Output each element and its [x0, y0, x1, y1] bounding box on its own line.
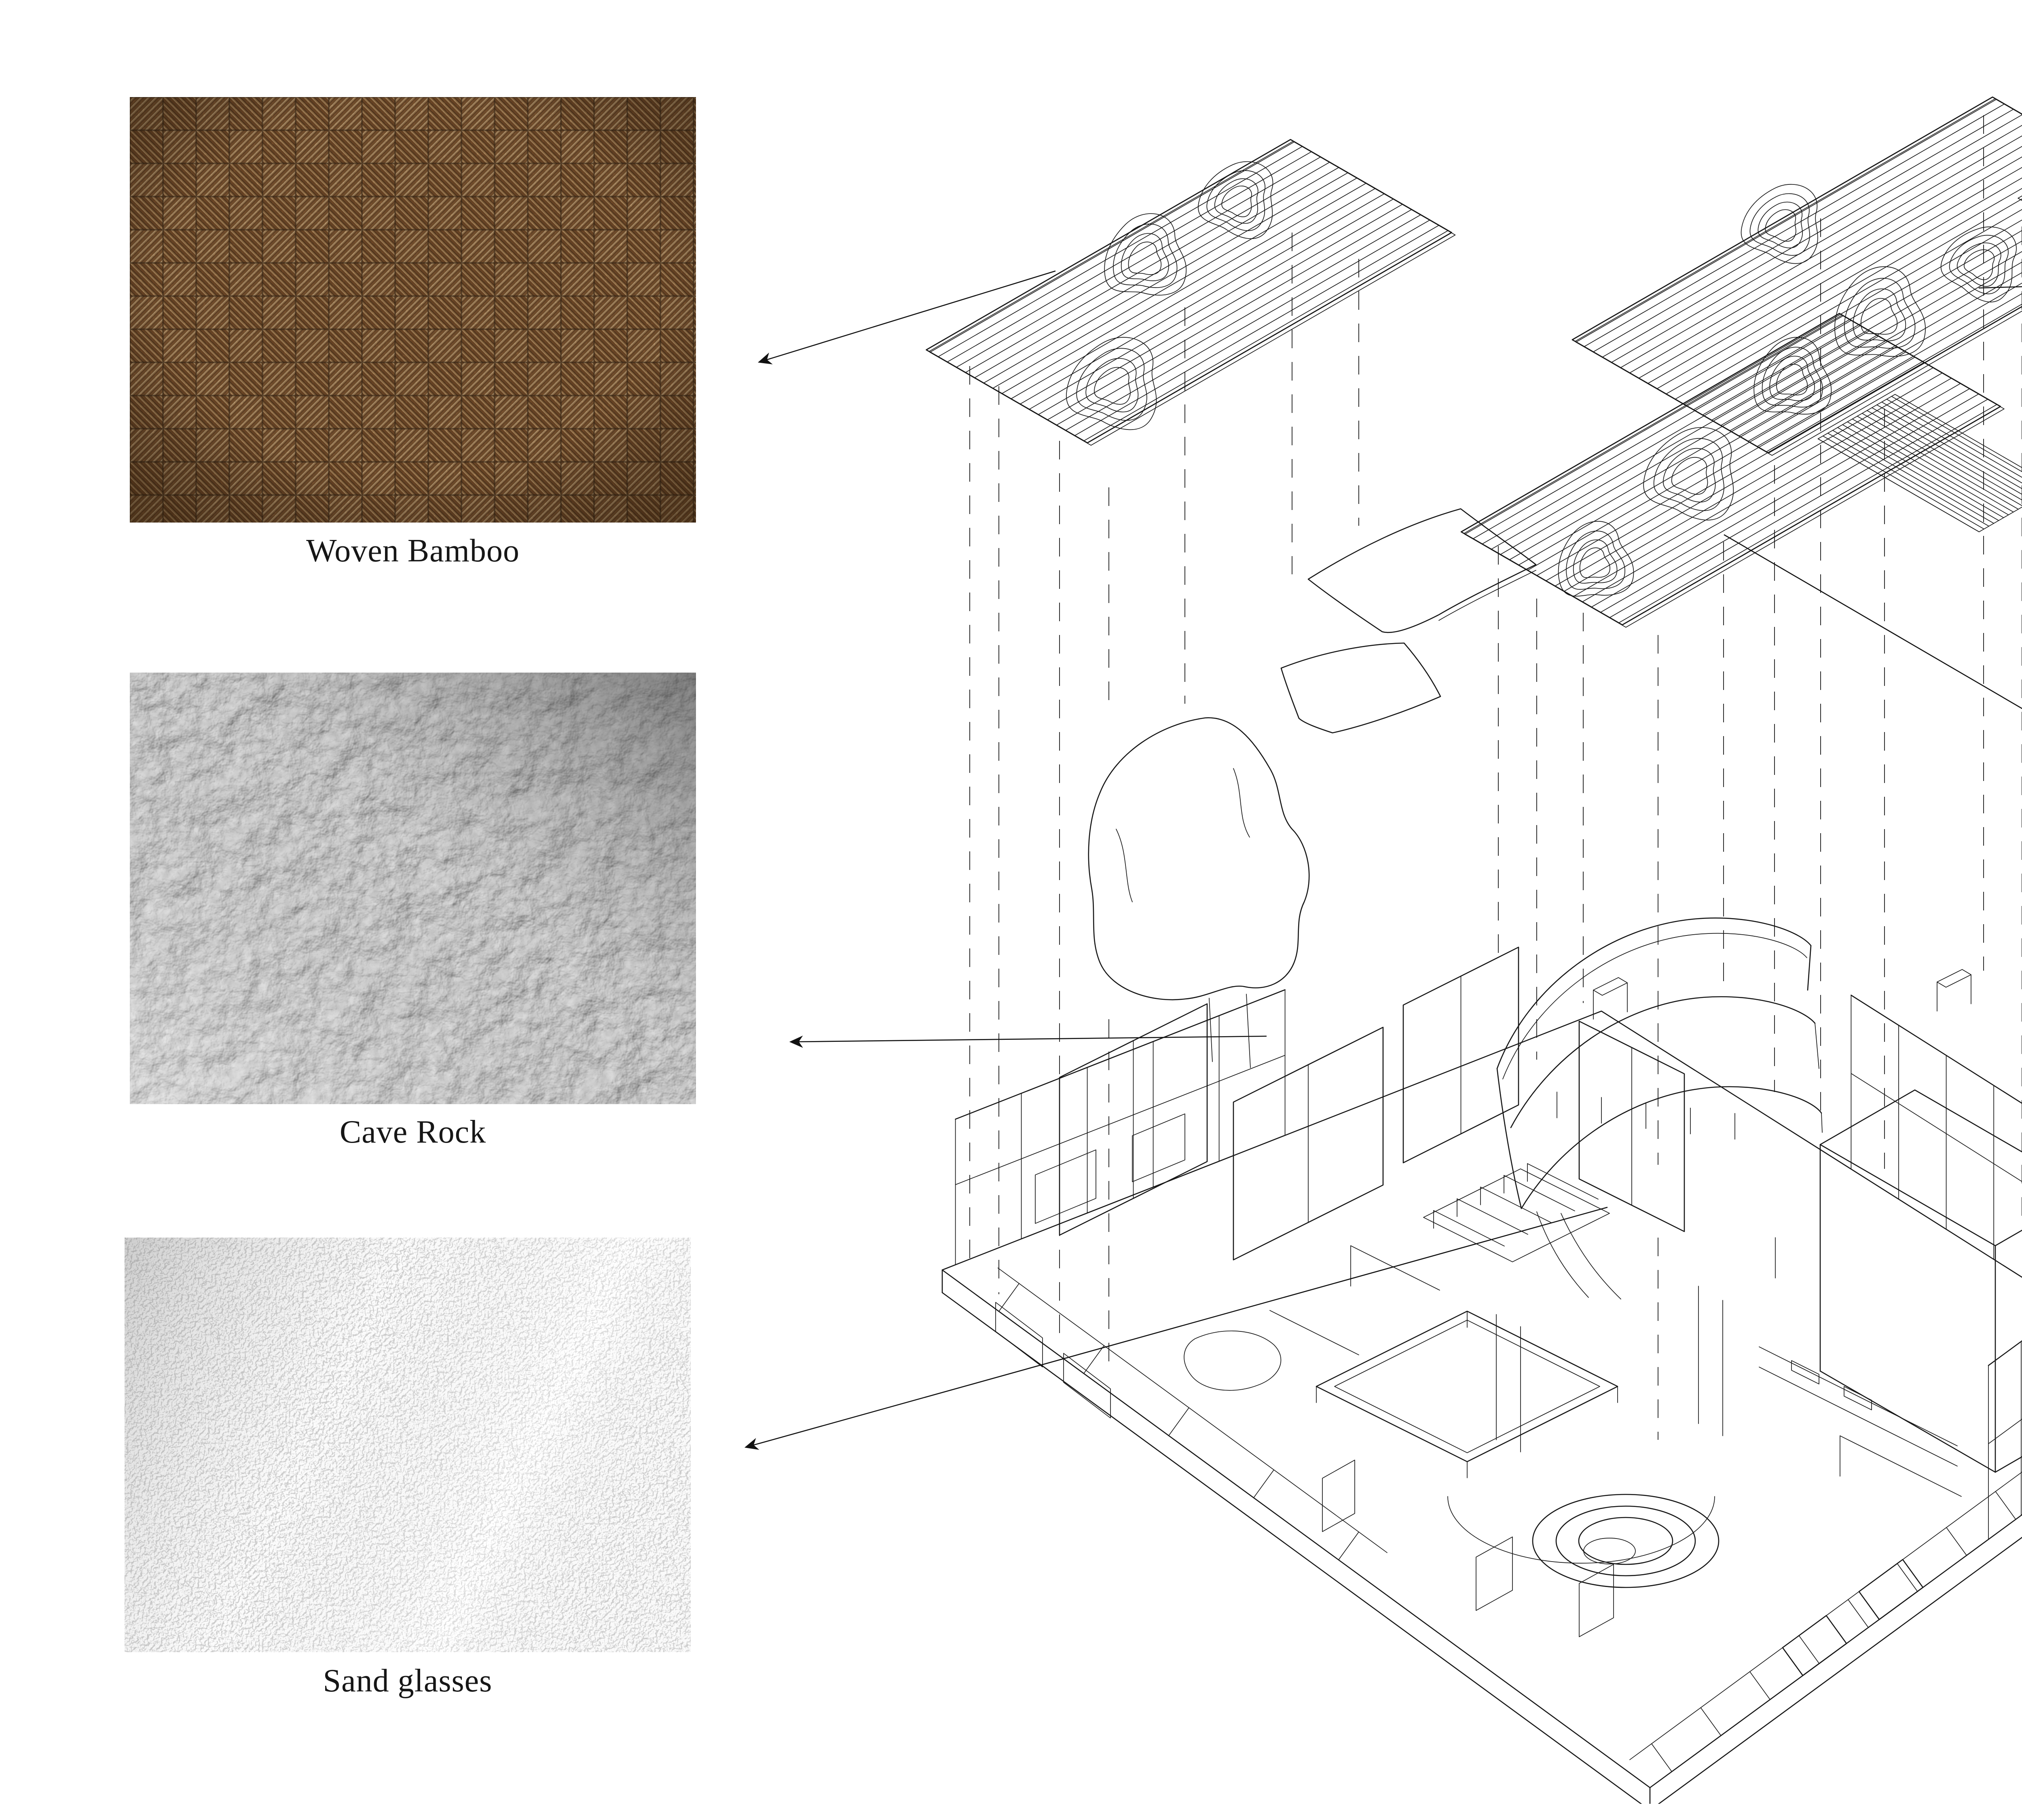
- leader-arrows: [746, 271, 2022, 1479]
- material-label-cave-rock: Cave Rock: [130, 1114, 696, 1150]
- roof-plane-bamboo-screen: [922, 137, 1455, 445]
- projection-guidelines: [970, 115, 2022, 1445]
- sand-glasses-texture: [125, 1238, 691, 1652]
- material-card-cave-rock: Cave Rock: [130, 673, 696, 1166]
- cave-rock-texture: [130, 673, 696, 1104]
- material-label-woven-bamboo: Woven Bamboo: [130, 533, 696, 569]
- acrylic-ribbon-wall: [1497, 918, 1822, 1299]
- material-label-sand-glasses: Sand glasses: [125, 1663, 691, 1699]
- material-card-woven-bamboo: Woven Bamboo: [130, 97, 696, 582]
- material-diagram-page: { "page": {"background": "#ffffff", "wid…: [0, 0, 2022, 1820]
- material-card-sand-glasses: Sand glasses: [125, 1238, 691, 1715]
- floating-slab-plates: [1281, 509, 1536, 733]
- roof-plane-middle: [1457, 311, 2022, 627]
- roof-plane-paper-screen: [1568, 95, 2022, 456]
- woven-bamboo-texture: [130, 97, 696, 523]
- floor-plan: [942, 947, 2022, 1804]
- exploded-axonometric-drawing: [720, 73, 2022, 1804]
